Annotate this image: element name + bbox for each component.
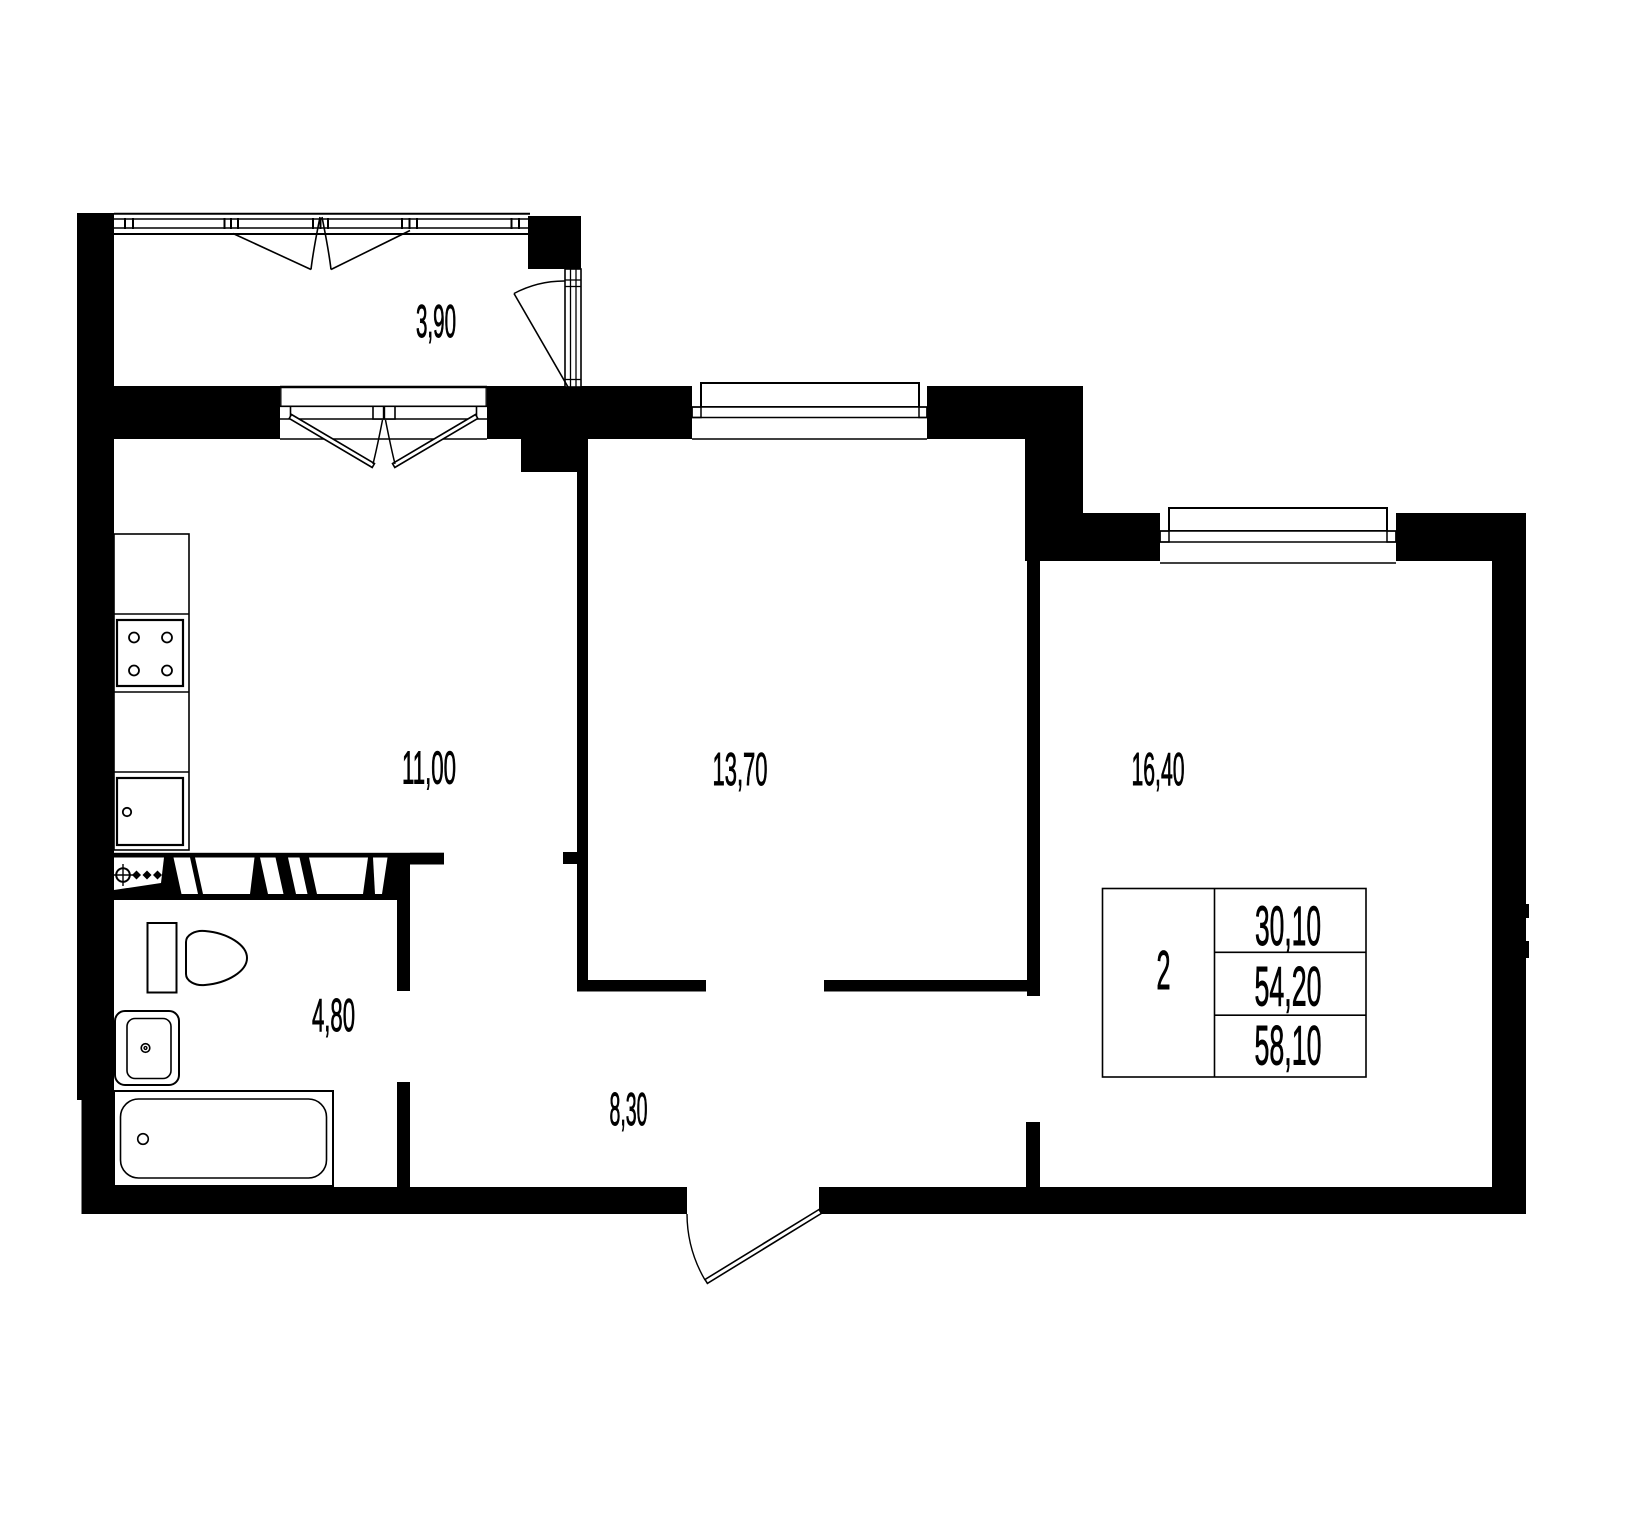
svg-text:11,00: 11,00 (402, 742, 456, 794)
svg-text:54,20: 54,20 (1255, 955, 1322, 1018)
svg-text:2: 2 (1157, 939, 1171, 1001)
svg-text:16,40: 16,40 (1132, 743, 1185, 795)
svg-text:8,30: 8,30 (610, 1083, 648, 1135)
svg-text:3,90: 3,90 (416, 295, 456, 347)
svg-text:13,70: 13,70 (713, 743, 768, 795)
svg-text:30,10: 30,10 (1255, 894, 1321, 957)
svg-text:58,10: 58,10 (1255, 1014, 1322, 1077)
svg-text:4,80: 4,80 (312, 989, 355, 1041)
